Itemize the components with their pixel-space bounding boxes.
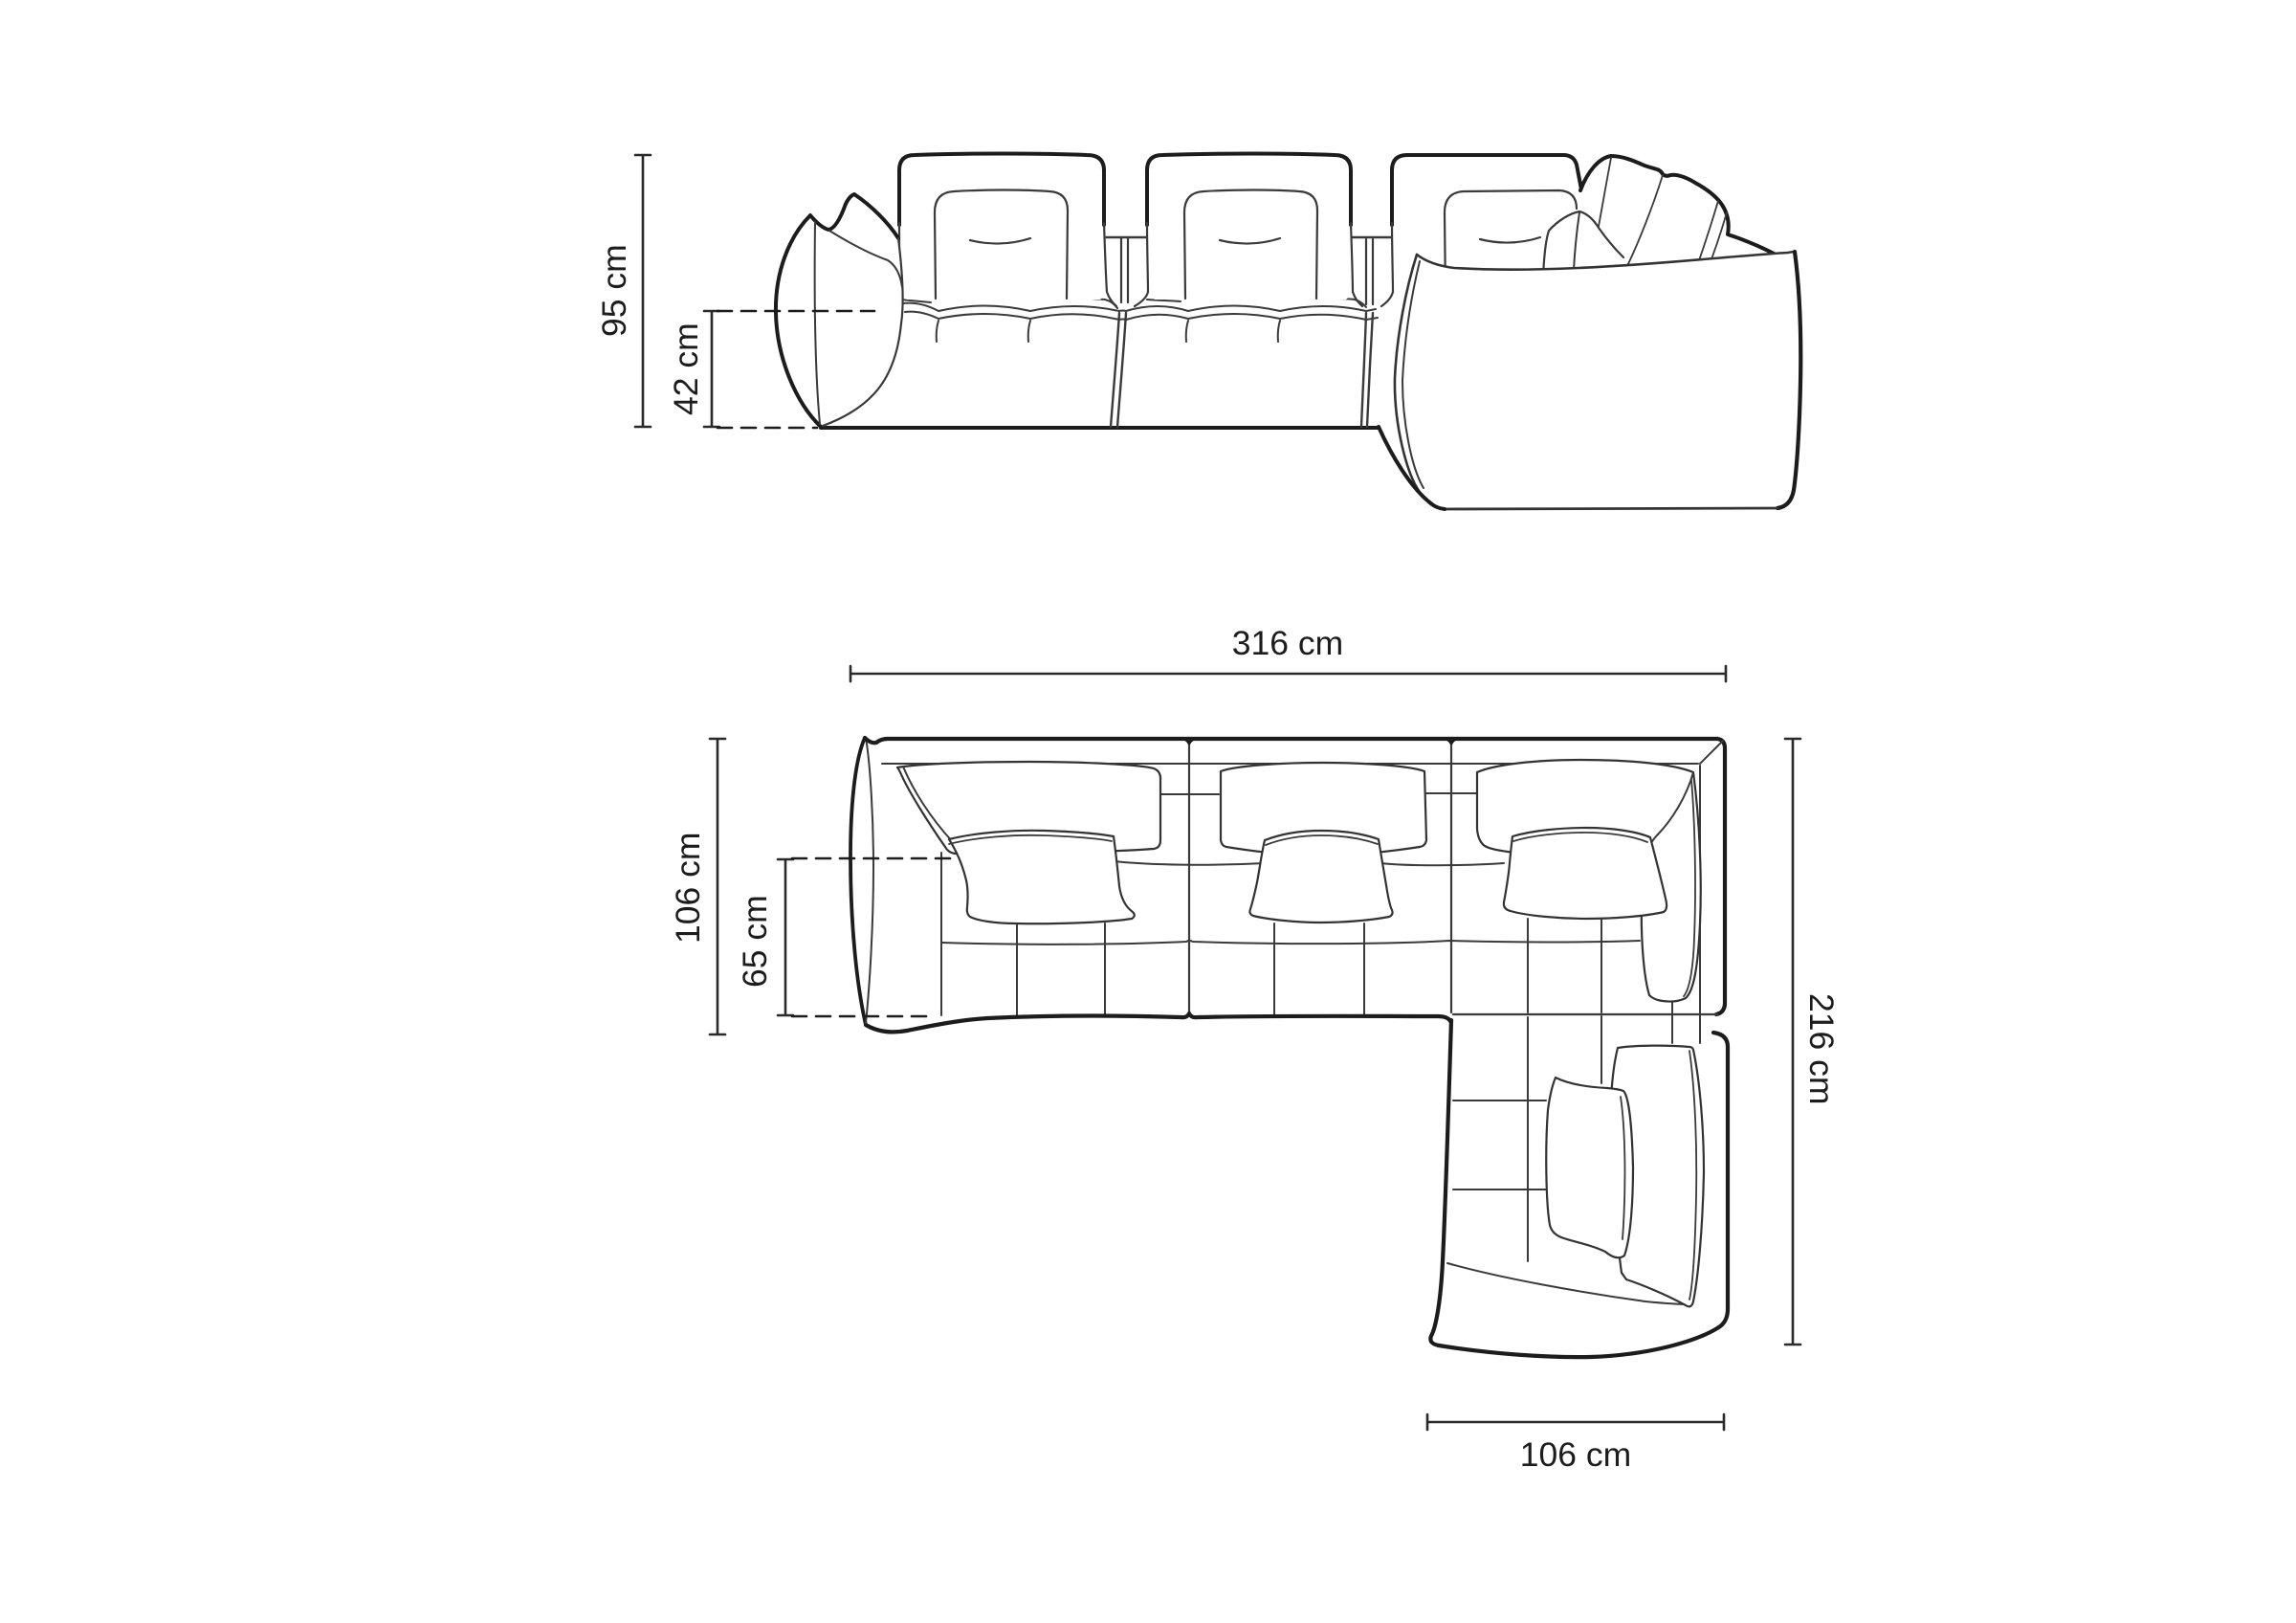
svg-text:95 cm: 95 cm [595,244,633,337]
svg-text:106 cm: 106 cm [669,833,707,944]
svg-text:65 cm: 65 cm [736,895,774,988]
svg-text:106 cm: 106 cm [1520,1435,1631,1474]
svg-text:42 cm: 42 cm [667,322,705,415]
svg-text:216 cm: 216 cm [1802,993,1841,1104]
svg-text:316 cm: 316 cm [1232,624,1343,662]
